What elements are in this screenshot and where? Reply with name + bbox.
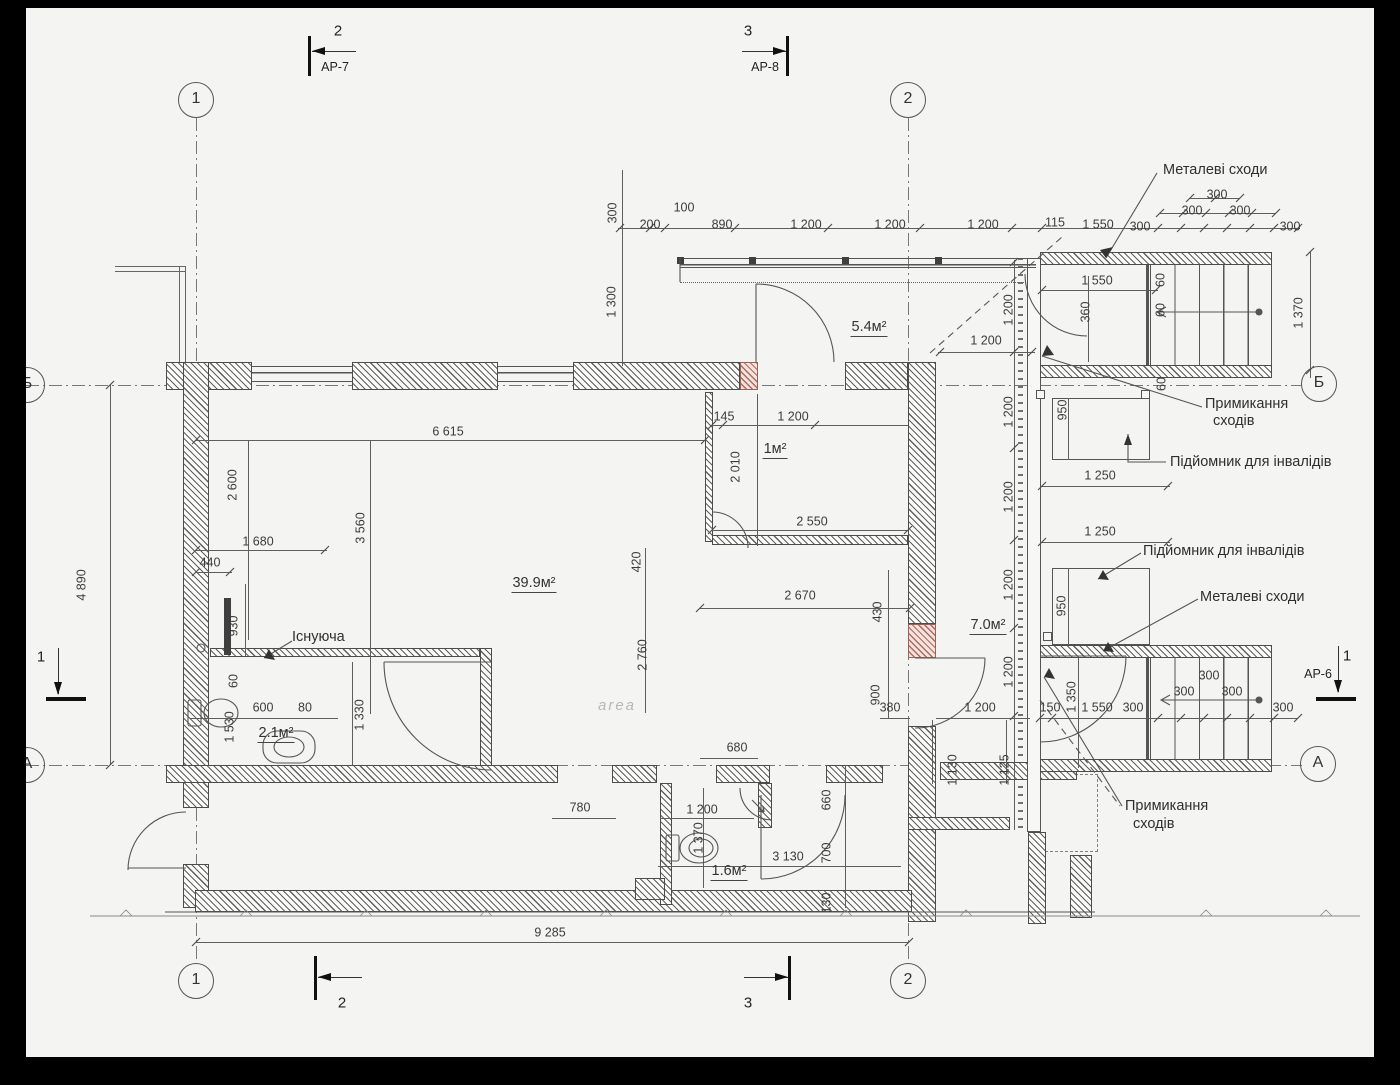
grid-bubble: 1 (178, 82, 214, 118)
section-number: 3 (744, 23, 752, 40)
dimension-label: 1 200 (970, 335, 1001, 348)
annotation-label: Металеві сходи (1163, 162, 1268, 178)
dimension-label: 60 (1155, 303, 1168, 317)
dimension-label: 1 680 (242, 536, 273, 549)
dimension-label: 1 330 (354, 699, 367, 730)
annotation-label: Металеві сходи (1200, 589, 1305, 605)
dimension-label: 1 200 (874, 219, 905, 232)
dimension-label: 2 010 (730, 451, 743, 482)
annotation-label: Існуюча (292, 629, 345, 645)
leader-line (1044, 677, 1122, 806)
dimension-label: 430 (872, 602, 885, 623)
dimension-label: 300 (1182, 205, 1203, 218)
room-area-label: 7.0м² (970, 617, 1007, 635)
dimension-label: 6 615 (432, 426, 463, 439)
dimension-label: 1 200 (686, 804, 717, 817)
dimension-label: 660 (821, 790, 834, 811)
leader-arrowhead (1124, 434, 1132, 445)
leader-arrowhead (1044, 668, 1055, 679)
dimension-label: 1 200 (1003, 656, 1016, 687)
dimension-label: 60 (1155, 273, 1168, 287)
dimension-label: 4 890 (76, 569, 89, 600)
dimension-label: 1 125 (999, 754, 1012, 785)
annotation-label: Підйомник для інвалідів (1170, 454, 1331, 470)
dimension-label: 2 600 (227, 469, 240, 500)
dimension-label: 1 200 (1003, 396, 1016, 427)
dimension-label: 300 (1130, 221, 1151, 234)
room-area-label: 5.4м² (851, 319, 888, 337)
annotation-label: Примикання (1205, 396, 1288, 412)
dimension-label: 890 (712, 219, 733, 232)
stair-arrow-dot (1256, 697, 1262, 703)
dimension-label: 3 560 (355, 512, 368, 543)
dimension-label: 1 250 (1084, 470, 1115, 483)
dimension-label: 300 (1230, 205, 1251, 218)
dimension-label: 300 (1123, 702, 1144, 715)
toilet-tank (188, 700, 201, 726)
dimension-label: 80 (298, 702, 312, 715)
dimension-label: 1 350 (1066, 681, 1079, 712)
dimension-label: 360 (1080, 302, 1093, 323)
dimension-label: 780 (570, 802, 591, 815)
grid-bubble: 2 (890, 963, 926, 999)
dimension-label: 440 (200, 557, 221, 570)
section-number: 2 (334, 23, 342, 40)
dimension-label: 1 250 (1084, 526, 1115, 539)
grid-bubble: 2 (890, 82, 926, 118)
door-arc (712, 512, 748, 548)
grid-bubble: А (1300, 746, 1336, 782)
annotation-label: сходів (1133, 816, 1174, 832)
grid-bubble: Б (1301, 366, 1337, 402)
dimension-label: 680 (727, 742, 748, 755)
watermark: area (598, 697, 636, 714)
dimension-label: 300 (1280, 221, 1301, 234)
toilet-tank (666, 835, 679, 861)
leader-line (1106, 173, 1157, 258)
dimension-label: 300 (1199, 670, 1220, 683)
dashed-diagonal (1040, 700, 1120, 806)
door-arc (128, 812, 186, 870)
dimension-label: 300 (1207, 189, 1228, 202)
dimension-label: 700 (821, 843, 834, 864)
letterbox-right (1374, 0, 1400, 1085)
dimension-label: 300 (607, 203, 620, 224)
floor-plan-canvas: 2 АР-7 3 АР-8 2 3 1 1 АР-6 area 1212ББАА… (0, 0, 1400, 1085)
dimension-label: 930 (228, 616, 241, 637)
dimension-label: 200 (640, 219, 661, 232)
section-number: 1 (1343, 648, 1351, 665)
stair-arrow-top (1157, 307, 1256, 317)
door-arc (384, 662, 492, 770)
dimension-label: 300 (1174, 686, 1195, 699)
dimension-label: 1 530 (224, 711, 237, 742)
dimension-label: 1 300 (606, 286, 619, 317)
dimension-label: 600 (253, 702, 274, 715)
dimension-label: 2 760 (637, 639, 650, 670)
grid-bubble: 1 (178, 963, 214, 999)
dimension-label: 130 (821, 893, 834, 914)
section-sheet-ref: АР-6 (1304, 667, 1332, 681)
leader-line (1128, 434, 1166, 462)
dimension-label: 300 (1273, 702, 1294, 715)
dimension-label: 145 (714, 411, 735, 424)
dimension-label: 1 370 (693, 822, 706, 853)
room-area-label: 2.1м² (258, 725, 295, 743)
dimension-label: 420 (631, 552, 644, 573)
break-ticks (120, 910, 1332, 916)
dimension-label: 9 285 (534, 927, 565, 940)
leader-arrowhead (1098, 570, 1109, 580)
leader-arrowhead (1103, 642, 1114, 652)
dimension-label: 1 200 (1003, 569, 1016, 600)
dimension-label: 1 550 (1081, 275, 1112, 288)
dimension-label: 2 550 (796, 516, 827, 529)
dimension-label: 1 200 (967, 219, 998, 232)
dimension-label: 1 200 (777, 411, 808, 424)
leader-arrowhead (1100, 247, 1113, 258)
door-arc (756, 284, 834, 362)
dimension-label: 2 670 (784, 590, 815, 603)
leader-line (1103, 599, 1198, 651)
leader-arrowhead (1042, 345, 1054, 356)
dimension-label: 60 (228, 674, 241, 688)
section-number: 2 (338, 995, 346, 1012)
room-area-label: 1м² (763, 441, 788, 459)
door-stop (197, 644, 205, 652)
dimension-label: 1 550 (1081, 702, 1112, 715)
dimension-label: 1 550 (1082, 219, 1113, 232)
leader-arrowhead (264, 649, 275, 660)
section-sheet-ref: АР-7 (321, 60, 349, 74)
dimension-label: 1 200 (790, 219, 821, 232)
dimension-label: 1 200 (1003, 294, 1016, 325)
section-number: 3 (744, 995, 752, 1012)
dimension-label: 1 200 (1003, 481, 1016, 512)
section-number: 1 (37, 649, 45, 666)
letterbox-left (0, 0, 26, 1085)
dimension-label: 3 130 (772, 851, 803, 864)
dimension-label: 115 (1045, 217, 1065, 230)
annotation-label: Підйомник для інвалідів (1143, 543, 1304, 559)
door-arc (915, 658, 985, 728)
letterbox-bottom (0, 1057, 1400, 1085)
annotation-label: сходів (1213, 413, 1254, 429)
dimension-label: 950 (1057, 400, 1070, 421)
dimension-label: 60 (1156, 377, 1169, 391)
room-area-label: 39.9м² (511, 575, 556, 593)
shower-tray (740, 788, 772, 820)
dimension-label: 150 (1040, 702, 1061, 715)
dimension-label: 1 200 (964, 702, 995, 715)
door-arc (1040, 656, 1126, 742)
section-sheet-ref: АР-8 (751, 60, 779, 74)
dimension-label: 300 (1222, 686, 1243, 699)
dimension-label: 1 130 (947, 754, 960, 785)
stair-arrow-dot (1256, 309, 1262, 315)
dimension-label: 1 370 (1293, 297, 1306, 328)
room-area-label: 1.6м² (711, 863, 748, 881)
letterbox-top (0, 0, 1400, 8)
annotation-label: Примикання (1125, 798, 1208, 814)
dimension-label: 100 (674, 202, 695, 215)
dimension-label: 380 (880, 702, 901, 715)
dimension-label: 950 (1056, 596, 1069, 617)
